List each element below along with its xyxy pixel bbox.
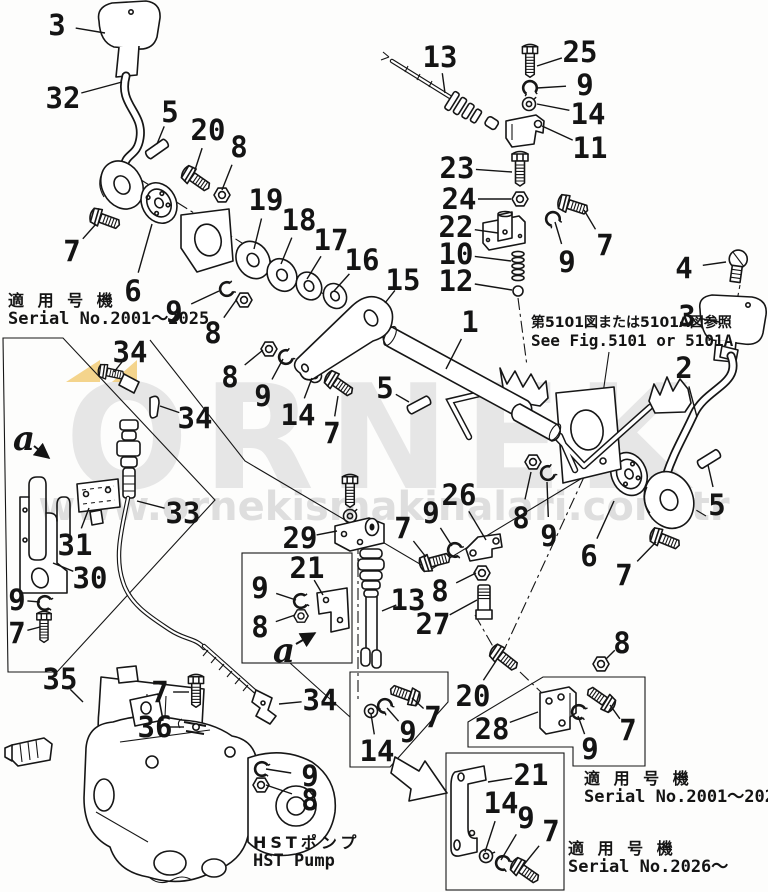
view-label-a-0: a <box>13 419 35 459</box>
nut-part-8 <box>261 342 277 356</box>
part-label-8-4: 8 <box>230 130 247 164</box>
spring-part-10 <box>512 251 524 280</box>
leader-line-7 <box>27 627 40 630</box>
leader-line-27 <box>450 600 477 615</box>
nut-part-8 <box>236 293 252 307</box>
nut-part-24 <box>512 192 528 206</box>
part-label-4-25: 4 <box>675 251 692 285</box>
part-label-9-54: 9 <box>422 496 439 530</box>
part-label-19-7: 19 <box>249 183 284 217</box>
bracket-part-28 <box>540 687 576 734</box>
part-label-34-42: 34 <box>178 401 213 435</box>
bolt-part-25 <box>522 44 537 77</box>
leader-line-20 <box>483 661 496 680</box>
jump-arrow <box>391 757 447 801</box>
nut-part-8 <box>214 188 230 202</box>
part-label-8-37: 8 <box>221 360 238 394</box>
leader-line-9 <box>555 222 562 244</box>
part-label-5-2: 5 <box>161 95 178 129</box>
part-label-6-31: 6 <box>580 539 597 573</box>
bracket-part-21 <box>451 766 486 856</box>
part-label-31-44: 31 <box>58 528 93 562</box>
part-label-7-74: 7 <box>542 814 559 848</box>
part-label-34-41: 34 <box>113 335 148 369</box>
part-label-7-32: 7 <box>615 558 632 592</box>
part-label-9-30: 9 <box>540 519 557 553</box>
leader-line-8 <box>456 573 476 583</box>
leader-line-11 <box>542 126 573 140</box>
washer-part-14 <box>523 97 537 110</box>
leader-line-32 <box>81 82 122 93</box>
serial-note-bottom-right: 適 用 号 機 Serial No.2026～ <box>568 840 728 877</box>
part-label-8-63: 8 <box>301 783 318 817</box>
clip-part-9 <box>218 280 236 298</box>
nut-part-8 <box>525 455 541 469</box>
part-label-18-8: 18 <box>282 203 317 237</box>
part-label-8-51: 8 <box>251 610 268 644</box>
leader-line-14 <box>485 821 495 852</box>
leader-line-8 <box>224 299 237 318</box>
part-label-9-73: 9 <box>517 801 534 835</box>
part-label-2-27: 2 <box>675 351 692 385</box>
part-label-15-34: 15 <box>386 263 421 297</box>
leader-line-9 <box>440 528 452 546</box>
bolt-part-20 <box>487 642 522 674</box>
part-label-30-45: 30 <box>73 561 108 595</box>
serial-note-jp: 適 用 号 機 <box>584 770 768 788</box>
part-label-29-48: 29 <box>283 521 318 555</box>
leader-line-9 <box>276 593 296 600</box>
leader-line-12 <box>475 284 512 290</box>
part-label-7-40: 7 <box>323 416 340 450</box>
stud-part-27 <box>476 585 492 619</box>
leader-line-29 <box>317 531 337 535</box>
part-label-8-33: 8 <box>613 626 630 660</box>
leader-line-7 <box>637 542 656 561</box>
view-label-a-1: a <box>273 631 295 671</box>
pin-part-5 <box>144 138 169 159</box>
part-label-20-64: 20 <box>456 679 491 713</box>
leader-line-7 <box>83 224 96 239</box>
part-label-9-38: 9 <box>254 379 271 413</box>
diagram-canvas: ORNEK www.ornekismakinalari.com.tr <box>0 0 768 892</box>
leader-line-14 <box>537 104 569 110</box>
part-label-7-5: 7 <box>63 234 80 268</box>
part-label-16-10: 16 <box>345 243 380 277</box>
clip-part-9 <box>522 80 538 96</box>
bolt-part-7 <box>647 526 682 553</box>
part-label-7-55: 7 <box>394 511 411 545</box>
leader-line-23 <box>476 169 512 172</box>
mount-plate-fig5101 <box>556 387 621 483</box>
part-label-14-68: 14 <box>360 734 395 768</box>
serial-note-jp: 適 用 号 機 <box>8 292 209 310</box>
part-label-25-14: 25 <box>563 35 598 69</box>
pump-name-jp: HSTポンプ <box>253 834 360 852</box>
part-label-3-0: 3 <box>48 8 65 42</box>
pump-name-label: HSTポンプ HST Pump <box>253 834 360 871</box>
cable-part-13-lower <box>358 549 384 668</box>
serial-note-en: Serial No.2001～2025 <box>8 310 209 329</box>
part-label-7-67: 7 <box>619 713 636 747</box>
part-label-12-22: 12 <box>439 264 474 298</box>
bolt-part-7 <box>88 206 123 232</box>
part-label-14-72: 14 <box>484 786 519 820</box>
leader-line-28 <box>510 712 538 722</box>
part-label-21-71: 21 <box>514 758 549 792</box>
nut-part-8 <box>474 566 490 580</box>
parts-diagram-page: ORNEK www.ornekismakinalari.com.tr <box>0 0 768 892</box>
bolt-part-7 <box>556 193 590 219</box>
serial-note-top-left: 適 用 号 機 Serial No.2001～2025 <box>8 292 209 329</box>
part-label-9-50: 9 <box>251 571 268 605</box>
leader-line-9 <box>501 834 516 860</box>
bracket-part-21 <box>317 588 349 632</box>
leader-line-7 <box>522 846 539 867</box>
leader-line-20 <box>194 148 202 173</box>
part-label-23-18: 23 <box>440 151 475 185</box>
view-arrow-0 <box>34 446 49 458</box>
bolt-part-7 <box>508 856 543 888</box>
part-label-35-58: 35 <box>43 662 78 696</box>
part-label-7-23: 7 <box>596 228 613 262</box>
nipple-part <box>10 738 52 766</box>
ball-part-12 <box>513 286 523 296</box>
bolt-part-23 <box>512 152 528 187</box>
part-label-13-13: 13 <box>423 40 458 74</box>
leader-line-9 <box>537 86 566 88</box>
part-label-8-56: 8 <box>431 574 448 608</box>
part-label-21-49: 21 <box>290 551 325 585</box>
leader-line-6 <box>138 224 152 273</box>
part-label-14-16: 14 <box>571 97 606 131</box>
leader-line-9 <box>387 708 399 721</box>
part-label-8-29: 8 <box>512 501 529 535</box>
clip-part-9 <box>37 595 53 611</box>
leader-line-8 <box>222 165 232 190</box>
fig-reference-jp: 第5101図または5101A図参照 <box>531 316 733 332</box>
part-label-5-36: 5 <box>376 371 393 405</box>
screw-part-4 <box>726 249 748 283</box>
leader-line-4 <box>703 262 726 265</box>
serial-note-en: Serial No.2026～ <box>568 858 728 877</box>
leader-line-8 <box>276 615 295 622</box>
part-label-17-9: 17 <box>314 223 349 257</box>
part-label-5-28: 5 <box>708 488 725 522</box>
nut-part-8 <box>294 610 308 622</box>
part-label-7-70: 7 <box>424 700 441 734</box>
washer-part-16 <box>319 279 351 313</box>
part-label-11-17: 11 <box>573 131 608 165</box>
part-label-7-47: 7 <box>8 616 25 650</box>
leader-line-34 <box>279 702 302 704</box>
part-label-14-39: 14 <box>281 398 316 432</box>
serial-note-jp: 適 用 号 機 <box>568 840 728 858</box>
part-label-7-59: 7 <box>151 675 168 709</box>
leader-line-10 <box>475 256 511 261</box>
fig-reference-en: See Fig.5101 or 5101A <box>531 332 733 350</box>
clip-part-9 <box>544 210 563 229</box>
part-label-33-43: 33 <box>166 496 201 530</box>
part-label-1-35: 1 <box>461 305 478 339</box>
part-label-27-57: 27 <box>416 607 451 641</box>
knob-part-3 <box>99 1 161 49</box>
serial-note-en: Serial No.2001～2025 <box>584 788 768 807</box>
serial-note-bottom-mid: 適 用 号 機 Serial No.2001～2025 <box>584 770 768 807</box>
fig-reference-note: 第5101図または5101A図参照 See Fig.5101 or 5101A <box>531 316 733 350</box>
leader-line-21 <box>488 778 512 782</box>
pump-name-en: HST Pump <box>253 852 360 871</box>
part-label-9-69: 9 <box>399 715 416 749</box>
part-label-28-65: 28 <box>475 712 510 746</box>
part-label-34-61: 34 <box>303 683 338 717</box>
part-label-9-66: 9 <box>581 732 598 766</box>
mount-plate <box>181 209 233 272</box>
clip-part-9 <box>293 593 309 609</box>
hook-part-34 <box>150 396 159 418</box>
leader-line-25 <box>537 58 562 66</box>
view-arrow-1 <box>296 633 315 644</box>
part-label-9-24: 9 <box>558 245 575 279</box>
part-label-32-1: 32 <box>46 81 81 115</box>
leader-line-7 <box>584 210 596 229</box>
elbow-part-34 <box>252 690 276 724</box>
part-label-26-53: 26 <box>442 478 477 512</box>
part-label-9-46: 9 <box>8 583 25 617</box>
part-label-36-60: 36 <box>138 710 173 744</box>
part-label-20-3: 20 <box>191 113 226 147</box>
leader-line-7 <box>413 541 426 557</box>
